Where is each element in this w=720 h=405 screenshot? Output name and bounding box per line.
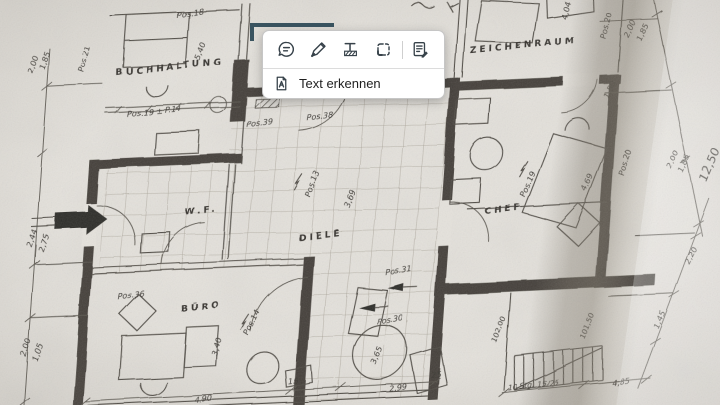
ocr-menu-item[interactable]: Text erkennen bbox=[263, 68, 444, 98]
toolbar-icon-row bbox=[263, 31, 444, 68]
document-edit-icon bbox=[411, 40, 430, 59]
text-redact-icon bbox=[341, 40, 360, 59]
toolbar-divider bbox=[402, 41, 403, 59]
screenshot-root: { "toolbar": { "buttons": [ {"name": "co… bbox=[0, 0, 720, 405]
ocr-menu-label: Text erkennen bbox=[299, 76, 381, 91]
speech-bubble-icon bbox=[277, 40, 296, 59]
pen-button[interactable] bbox=[304, 36, 332, 64]
edit-document-button[interactable] bbox=[407, 36, 435, 64]
pen-icon bbox=[309, 40, 328, 59]
dashed-selection-icon bbox=[374, 40, 393, 59]
selection-corner-handle[interactable] bbox=[250, 23, 254, 41]
select-region-button[interactable] bbox=[369, 36, 397, 64]
selection-corner-handle[interactable] bbox=[250, 23, 334, 27]
redact-text-button[interactable] bbox=[337, 36, 365, 64]
comment-button[interactable] bbox=[272, 36, 300, 64]
document-a-icon bbox=[273, 75, 290, 92]
annotation-toolbar: Text erkennen bbox=[262, 30, 445, 99]
